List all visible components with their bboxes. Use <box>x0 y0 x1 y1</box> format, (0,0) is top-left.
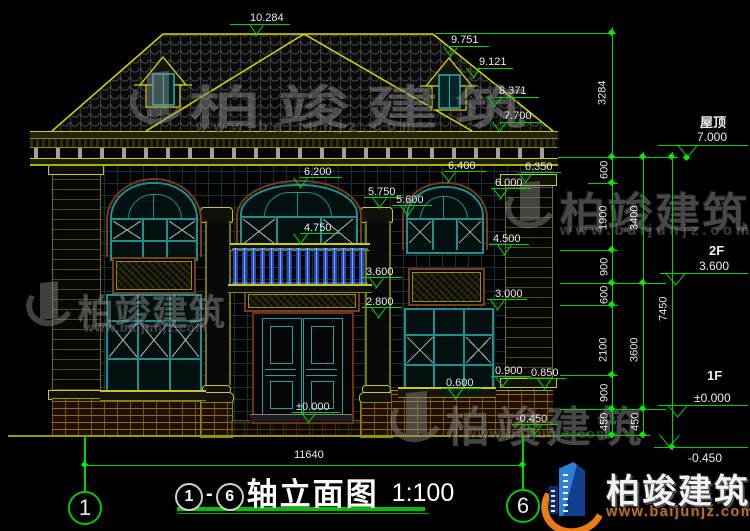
chain1-seg: 3284 <box>596 62 609 124</box>
dim-chain-line <box>643 152 644 438</box>
level-triangle <box>536 379 552 390</box>
level-triangle <box>368 278 384 289</box>
dim-center-window-top: 6.200 <box>304 166 332 178</box>
level-2f-value: 3.600 <box>699 259 729 273</box>
brand-logo-windows <box>563 472 568 512</box>
level-triangle <box>399 206 415 217</box>
dim-right-window-sill: 4.500 <box>493 233 521 245</box>
level-1f-label: 1F <box>707 368 722 383</box>
brand-url: www.baijunjz.com <box>606 504 750 520</box>
watermark-building <box>147 71 169 118</box>
chain1-seg: 900 <box>598 253 611 281</box>
drawing-title-row: 1 - 6 轴立面图 1:100 <box>175 479 454 514</box>
elevation-drawing-canvas: 柏竣建筑 www.baijunjz.com 柏竣建筑 www.baijunjz.… <box>0 0 750 531</box>
level-triangle <box>486 97 502 108</box>
level-triangle <box>447 389 463 400</box>
level-triangle <box>292 178 308 189</box>
level-triangle <box>465 68 481 79</box>
watermark-url-left: www.baijunjz.com <box>84 321 208 335</box>
dim-ext-line <box>558 157 678 158</box>
level-triangle <box>248 25 264 36</box>
chain1-seg: 900 <box>598 379 611 406</box>
watermark-url-roof: www.baijunjz.com <box>196 118 421 135</box>
dim-1f-window-top: 3.000 <box>495 288 523 300</box>
title-scale: 1:100 <box>392 479 455 508</box>
brand-logo-wing-windows <box>551 490 555 512</box>
dim-balcony-floor: 3.600 <box>366 266 394 278</box>
dim-roof-peak: 10.284 <box>250 12 284 24</box>
title-axis-start-bubble: 1 <box>175 483 203 511</box>
dim-corner-base: 0.850 <box>531 367 559 379</box>
level-triangle <box>489 300 505 311</box>
dim-capital-right: 5.600 <box>396 194 424 206</box>
dim-right-window-top: 6.400 <box>448 160 476 172</box>
dim-capital-left: 5.750 <box>368 186 396 198</box>
title-dash: - <box>206 483 213 506</box>
brand-logo <box>543 460 601 526</box>
title-axis-end-bubble: 6 <box>216 483 244 511</box>
chain2-seg: 3600 <box>628 327 641 373</box>
axis-bubble-6: 6 <box>506 489 540 523</box>
dim-dormer-top: 9.751 <box>451 34 479 46</box>
dim-right-arch-spring: 6.000 <box>495 177 523 189</box>
dim-total-width: 11640 <box>294 449 324 461</box>
dim-balcony-rail: 4.750 <box>304 222 332 234</box>
dim-floor1-center: ±0.000 <box>296 401 330 413</box>
dim-eave: 7.700 <box>504 110 532 122</box>
level-triangle <box>658 435 680 448</box>
chain2-seg: 450 <box>629 410 642 433</box>
level-2f-label: 2F <box>709 243 724 258</box>
level-triangle <box>496 245 512 256</box>
level-triangle <box>526 425 542 436</box>
dim-ext-line <box>560 435 650 436</box>
dim-corner-capital: 6.350 <box>525 161 553 173</box>
chain1-seg: 600 <box>598 286 611 304</box>
level-triangle <box>666 405 688 418</box>
watermark-url-right: www.baijunjz.com <box>560 222 750 239</box>
level-triangle <box>292 234 308 245</box>
level-triangle <box>300 413 316 424</box>
dim-door-top: 2.800 <box>366 296 394 308</box>
level-triangle <box>494 377 510 388</box>
chain3-seg: 7450 <box>657 285 670 333</box>
level-roof-value: 7.000 <box>697 130 727 144</box>
watermark-logo-left <box>26 282 72 326</box>
chain1-seg: 2100 <box>597 327 610 373</box>
level-triangle <box>370 308 386 319</box>
level-triangle <box>440 172 456 183</box>
level-roof-label: 屋顶 <box>700 112 726 131</box>
dim-ground-right: -0.450 <box>516 413 547 425</box>
chain1-seg: 1900 <box>597 192 610 244</box>
dim-line-total <box>85 465 523 466</box>
balcony-balusters <box>232 248 368 284</box>
watermark-logo-bottom <box>390 392 442 442</box>
chain1-seg: 450 <box>598 410 611 433</box>
level-triangle <box>492 189 508 200</box>
watermark-building <box>406 391 427 436</box>
level-triangle <box>491 122 507 133</box>
balcony-bottom-rail <box>228 284 372 293</box>
chain1-seg: 600 <box>598 158 611 182</box>
dim-dormer-eave: 9.121 <box>479 56 507 68</box>
dim-pier-base: 0.900 <box>495 365 523 377</box>
watermark-logo-roof <box>130 72 186 124</box>
watermark-building <box>40 281 58 320</box>
dim-roof-edge: 8.371 <box>499 85 527 97</box>
level-triangle <box>371 198 387 209</box>
axis-bubble-1: 1 <box>68 491 102 525</box>
chain2-seg: 3400 <box>628 192 641 244</box>
level-triangle <box>442 47 458 58</box>
page-title: 轴立面图 <box>247 469 379 514</box>
level-1f-value: ±0.000 <box>694 391 731 405</box>
dim-1f-window-sill: 0.600 <box>446 377 474 389</box>
level-ground-value: -0.450 <box>688 451 722 465</box>
level-line <box>658 145 748 146</box>
